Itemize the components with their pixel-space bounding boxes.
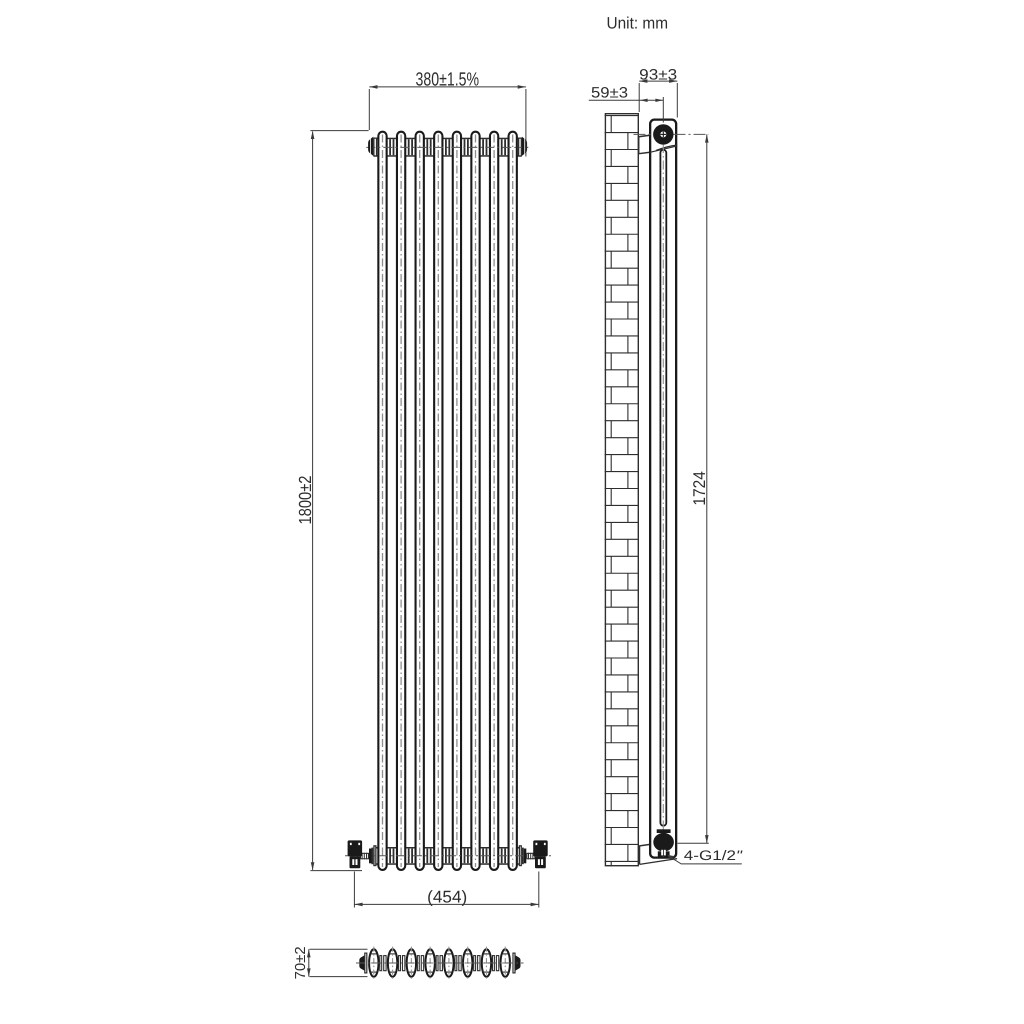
svg-text:(454): (454) [427,887,467,906]
svg-text:380±1.5%: 380±1.5% [416,70,480,91]
svg-text:1724: 1724 [690,471,709,506]
svg-text:59±3: 59±3 [591,85,628,102]
svg-text:Unit: mm: Unit: mm [607,15,669,33]
svg-text:70±2: 70±2 [293,946,309,979]
svg-text:1800±2: 1800±2 [295,476,315,525]
svg-text:93±3: 93±3 [639,66,677,83]
svg-text:4-G1/2": 4-G1/2" [684,848,744,863]
